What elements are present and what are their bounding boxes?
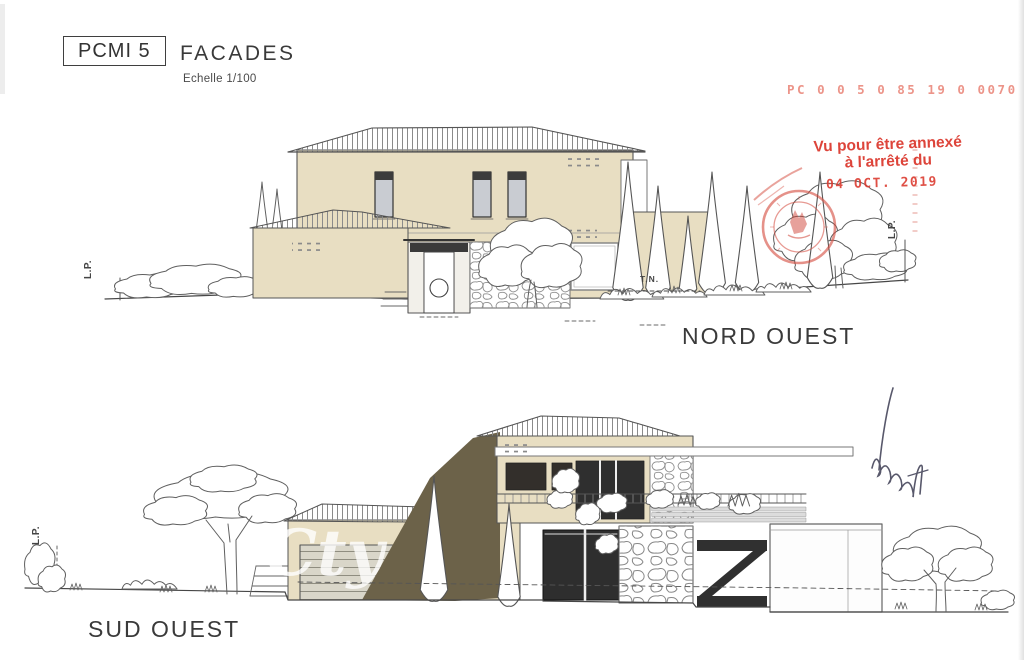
sw-stair-shadow [697,540,767,607]
nw-window [373,172,395,219]
approval-date-stamp: 04 OCT. 2019 [826,175,938,193]
southwest-elevation-title: SUD OUEST [88,616,240,643]
sw-terrace-steps [652,507,806,522]
sw-roof-slab [495,447,853,456]
nw-lower-wing [253,228,408,298]
sw-pyramid-roof [477,416,680,436]
permit-number-stamp: PC 0 0 5 0 85 19 0 0070 [787,82,1018,97]
sheet-scale: Echelle 1/100 [183,73,257,85]
sw-white-volume [770,524,882,612]
sw-stone-wall [619,526,693,603]
nw-vent-dots [565,155,599,168]
nw-property-limit-right-label: L.P. [887,220,898,239]
sw-vent-dots [503,444,529,454]
northwest-elevation-title: NORD OUEST [682,323,855,350]
scan-edge-left [0,4,5,94]
sw-left-hedge [25,543,66,592]
sw-property-limit-left-label: L.P. [31,526,42,545]
sheet-title: FACADES [180,42,296,66]
nw-natural-ground-label: T.N. [640,274,659,284]
scan-edge-right [1018,0,1024,660]
nw-vent-dots [292,239,322,252]
nw-hidden-lines [420,317,666,325]
sheet-code-box: PCMI 5 [63,36,166,66]
sw-right-tree [882,526,1015,611]
elevation-drawings [0,0,1024,660]
nw-main-roof [288,127,645,152]
nw-entry-door [404,240,474,313]
nw-window [506,172,528,219]
southwest-elevation [25,416,1015,612]
scanned-facade-sheet: PCMI 5 FACADES Echelle 1/100 PC 0 0 5 0 … [0,0,1024,660]
nw-property-limit-left-label: L.P. [83,260,94,279]
nw-left-hedge [114,264,263,298]
nw-window [471,172,493,219]
signature [872,388,928,497]
photo-watermark: Cty [266,516,384,591]
